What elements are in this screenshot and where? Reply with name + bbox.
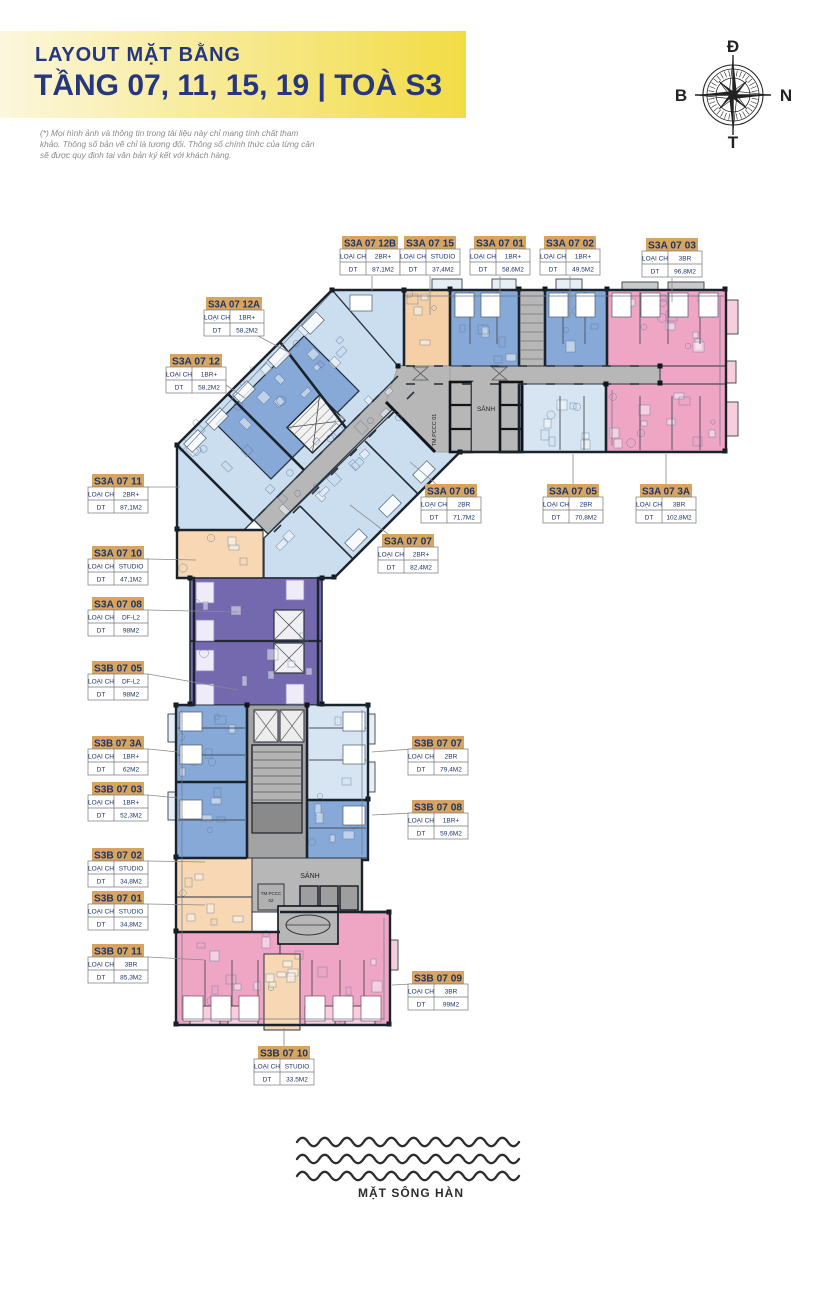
svg-text:DT: DT xyxy=(430,515,439,522)
svg-text:DT: DT xyxy=(263,1077,272,1084)
svg-text:LOẠI CH: LOẠI CH xyxy=(540,254,566,261)
svg-text:33,5M2: 33,5M2 xyxy=(286,1077,308,1084)
svg-text:STUDIO: STUDIO xyxy=(285,1064,310,1071)
svg-text:DT: DT xyxy=(417,767,426,774)
svg-text:LOẠI CH: LOẠI CH xyxy=(88,564,114,571)
svg-text:DT: DT xyxy=(175,385,184,392)
svg-text:T: T xyxy=(728,133,739,152)
svg-text:LOẠI CH: LOẠI CH xyxy=(88,909,114,916)
svg-text:79,4M2: 79,4M2 xyxy=(440,767,462,774)
svg-text:LOẠI CH: LOẠI CH xyxy=(204,315,230,322)
svg-text:S3B 07 10: S3B 07 10 xyxy=(260,1048,308,1060)
svg-text:LOẠI CH: LOẠI CH xyxy=(88,615,114,622)
svg-text:98M2: 98M2 xyxy=(123,692,140,699)
svg-text:N: N xyxy=(780,86,792,105)
svg-text:LOẠI CH: LOẠI CH xyxy=(408,754,434,761)
svg-text:DT: DT xyxy=(213,328,222,335)
svg-text:STUDIO: STUDIO xyxy=(119,564,144,571)
svg-text:S3B 07 09: S3B 07 09 xyxy=(414,973,462,985)
svg-text:TM.PCCC: TM.PCCC xyxy=(261,891,282,896)
svg-text:3BR: 3BR xyxy=(673,502,686,509)
svg-text:S3A 07 11: S3A 07 11 xyxy=(94,476,142,488)
svg-text:85,3M2: 85,3M2 xyxy=(120,975,142,982)
svg-text:34,8M2: 34,8M2 xyxy=(120,922,142,929)
svg-text:DT: DT xyxy=(97,813,106,820)
svg-text:DT: DT xyxy=(97,505,106,512)
svg-text:DT: DT xyxy=(417,1002,426,1009)
svg-text:S3A 07 08: S3A 07 08 xyxy=(94,599,142,611)
svg-text:DT: DT xyxy=(97,628,106,635)
svg-text:DT: DT xyxy=(645,515,654,522)
svg-text:Đ: Đ xyxy=(727,37,739,56)
svg-text:2BR+: 2BR+ xyxy=(413,552,430,559)
svg-text:DF-L2: DF-L2 xyxy=(122,615,140,622)
svg-text:47,1M2: 47,1M2 xyxy=(120,577,142,584)
svg-text:TM.PCCC 01: TM.PCCC 01 xyxy=(432,414,438,447)
svg-text:98M2: 98M2 xyxy=(123,628,140,635)
svg-text:LOẠI CH: LOẠI CH xyxy=(408,989,434,996)
svg-text:62M2: 62M2 xyxy=(123,767,140,774)
svg-text:LOẠI CH: LOẠI CH xyxy=(642,256,668,263)
svg-text:S3B 07 11: S3B 07 11 xyxy=(94,946,142,958)
svg-text:1BR+: 1BR+ xyxy=(505,254,522,261)
svg-text:S3A 07 01: S3A 07 01 xyxy=(476,238,524,250)
svg-text:71,7M2: 71,7M2 xyxy=(453,515,475,522)
svg-text:37,4M2: 37,4M2 xyxy=(432,267,454,274)
svg-text:LOẠI CH: LOẠI CH xyxy=(88,754,114,761)
svg-text:96,8M2: 96,8M2 xyxy=(674,269,696,276)
svg-text:1BR+: 1BR+ xyxy=(123,754,140,761)
svg-text:70,8M2: 70,8M2 xyxy=(575,515,597,522)
svg-text:STUDIO: STUDIO xyxy=(431,254,456,261)
svg-text:LOẠI CH: LOẠI CH xyxy=(88,962,114,969)
svg-text:S3A 07 15: S3A 07 15 xyxy=(406,238,454,250)
svg-text:S3A 07 02: S3A 07 02 xyxy=(546,238,594,250)
svg-text:B: B xyxy=(675,86,687,105)
svg-text:LOẠI CH: LOẠI CH xyxy=(408,818,434,825)
svg-text:DT: DT xyxy=(97,577,106,584)
svg-text:2BR: 2BR xyxy=(445,754,458,761)
svg-text:82,4M2: 82,4M2 xyxy=(410,565,432,572)
svg-text:LOẠI CH: LOẠI CH xyxy=(88,866,114,873)
svg-text:DT: DT xyxy=(409,267,418,274)
svg-text:LOẠI CH: LOẠI CH xyxy=(543,502,569,509)
svg-text:S3A 07 05: S3A 07 05 xyxy=(549,486,597,498)
svg-text:S3A 07 06: S3A 07 06 xyxy=(427,486,475,498)
svg-text:58,2M2: 58,2M2 xyxy=(236,328,258,335)
svg-text:DT: DT xyxy=(97,767,106,774)
svg-text:LOẠI CH: LOẠI CH xyxy=(421,502,447,509)
svg-text:1BR+: 1BR+ xyxy=(201,372,218,379)
svg-text:3BR: 3BR xyxy=(679,256,692,263)
svg-text:LOẠI CH: LOẠI CH xyxy=(636,502,662,509)
svg-text:STUDIO: STUDIO xyxy=(119,909,144,916)
svg-text:S3A 07 3A: S3A 07 3A xyxy=(642,486,690,498)
svg-text:S3A 07 12A: S3A 07 12A xyxy=(208,299,260,311)
svg-text:1BR+: 1BR+ xyxy=(575,254,592,261)
svg-text:02: 02 xyxy=(268,898,274,903)
svg-text:STUDIO: STUDIO xyxy=(119,866,144,873)
svg-text:3BR: 3BR xyxy=(445,989,458,996)
svg-text:SẢNH: SẢNH xyxy=(300,871,319,880)
svg-text:DT: DT xyxy=(97,692,106,699)
svg-text:DT: DT xyxy=(479,267,488,274)
svg-text:LOẠI CH: LOẠI CH xyxy=(254,1064,280,1071)
svg-text:S3A 07 12B: S3A 07 12B xyxy=(344,238,396,250)
svg-text:SẢNH: SẢNH xyxy=(477,404,495,413)
svg-text:2BR+: 2BR+ xyxy=(375,254,392,261)
svg-text:S3A 07 07: S3A 07 07 xyxy=(384,536,432,548)
svg-text:52,3M2: 52,3M2 xyxy=(120,813,142,820)
svg-text:DT: DT xyxy=(417,831,426,838)
svg-text:3BR: 3BR xyxy=(125,962,138,969)
svg-text:LOẠI CH: LOẠI CH xyxy=(470,254,496,261)
svg-text:S3B 07 08: S3B 07 08 xyxy=(414,802,462,814)
svg-text:34,8M2: 34,8M2 xyxy=(120,879,142,886)
svg-text:2BR: 2BR xyxy=(458,502,471,509)
svg-text:49,5M2: 49,5M2 xyxy=(572,267,594,274)
svg-text:87,1M2: 87,1M2 xyxy=(372,267,394,274)
svg-text:MẶT SÔNG HÀN: MẶT SÔNG HÀN xyxy=(358,1185,464,1200)
svg-text:59,6M2: 59,6M2 xyxy=(440,831,462,838)
svg-text:S3B 07 02: S3B 07 02 xyxy=(94,850,142,862)
svg-text:1BR+: 1BR+ xyxy=(443,818,460,825)
svg-text:S3B 07 07: S3B 07 07 xyxy=(414,738,462,750)
svg-text:S3B 07 01: S3B 07 01 xyxy=(94,893,142,905)
svg-text:58,6M2: 58,6M2 xyxy=(502,267,524,274)
svg-text:LOẠI CH: LOẠI CH xyxy=(400,254,426,261)
svg-text:58,2M2: 58,2M2 xyxy=(198,385,220,392)
svg-text:87,1M2: 87,1M2 xyxy=(120,505,142,512)
svg-text:2BR+: 2BR+ xyxy=(123,492,140,499)
svg-text:S3A 07 10: S3A 07 10 xyxy=(94,548,142,560)
svg-text:S3A 07 03: S3A 07 03 xyxy=(648,240,696,252)
svg-text:LOẠI CH: LOẠI CH xyxy=(88,679,114,686)
svg-text:LOẠI CH: LOẠI CH xyxy=(88,800,114,807)
svg-text:DT: DT xyxy=(651,269,660,276)
svg-text:DT: DT xyxy=(97,975,106,982)
svg-text:LOẠI CH: LOẠI CH xyxy=(166,372,192,379)
svg-text:LOẠI CH: LOẠI CH xyxy=(88,492,114,499)
svg-text:99M2: 99M2 xyxy=(443,1002,460,1009)
svg-text:LOẠI CH: LOẠI CH xyxy=(378,552,404,559)
svg-text:1BR+: 1BR+ xyxy=(123,800,140,807)
svg-text:1BR+: 1BR+ xyxy=(239,315,256,322)
svg-text:S3B 07 05: S3B 07 05 xyxy=(94,663,142,675)
svg-text:S3B 07 3A: S3B 07 3A xyxy=(94,738,142,750)
svg-text:DT: DT xyxy=(549,267,558,274)
svg-text:S3B 07 03: S3B 07 03 xyxy=(94,784,142,796)
svg-text:DT: DT xyxy=(97,922,106,929)
svg-text:DT: DT xyxy=(349,267,358,274)
svg-text:S3A 07 12: S3A 07 12 xyxy=(172,356,220,368)
svg-text:LOẠI CH: LOẠI CH xyxy=(340,254,366,261)
svg-text:DF-L2: DF-L2 xyxy=(122,679,140,686)
svg-text:DT: DT xyxy=(552,515,561,522)
svg-text:2BR: 2BR xyxy=(580,502,593,509)
svg-text:102,8M2: 102,8M2 xyxy=(666,515,692,522)
svg-text:DT: DT xyxy=(387,565,396,572)
svg-text:DT: DT xyxy=(97,879,106,886)
